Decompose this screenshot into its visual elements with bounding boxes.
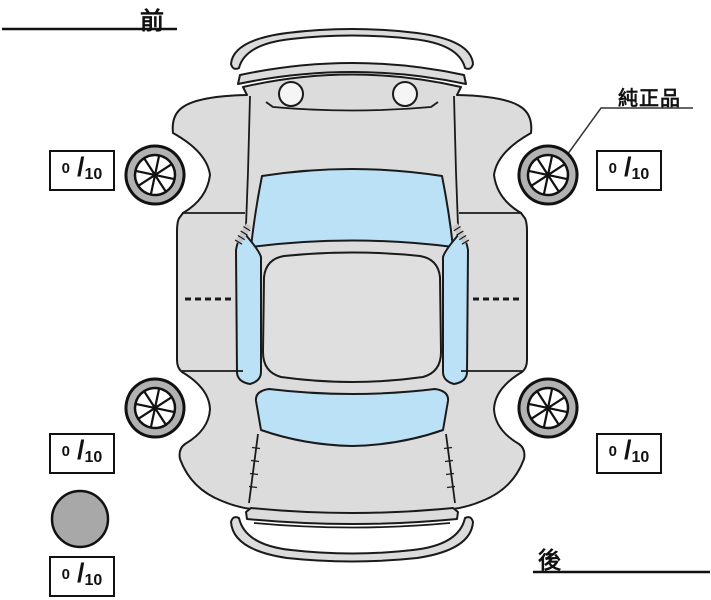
tread-separator: / bbox=[77, 560, 85, 587]
hood-washer-right bbox=[393, 82, 417, 106]
tread-score-rear-right: 0 / 10 bbox=[596, 433, 662, 474]
tread-value: 0 bbox=[62, 566, 70, 583]
tread-score-front-left: 0 / 10 bbox=[49, 150, 115, 191]
wheel-rear-left-icon bbox=[121, 374, 190, 443]
tread-max: 10 bbox=[632, 166, 650, 184]
wheel-front-left-icon bbox=[121, 141, 190, 210]
rear-window-glass bbox=[256, 389, 448, 446]
tread-value: 0 bbox=[62, 160, 70, 177]
front-label: 前 bbox=[140, 1, 164, 36]
side-window-left bbox=[236, 233, 261, 384]
tread-value: 0 bbox=[609, 160, 617, 177]
vehicle-diagram-canvas: 前 後 純正品 0 / 10 0 / 10 0 / 10 0 / 10 0 / … bbox=[0, 0, 711, 600]
tread-separator: / bbox=[624, 437, 632, 464]
tread-separator: / bbox=[77, 154, 85, 181]
roof-panel bbox=[263, 253, 441, 383]
spare-tire-icon bbox=[52, 491, 108, 547]
tread-separator: / bbox=[624, 154, 632, 181]
rear-label: 後 bbox=[538, 541, 561, 575]
tread-max: 10 bbox=[85, 449, 103, 467]
wheel-rear-right-icon bbox=[514, 374, 583, 443]
car-top-view-diagram bbox=[0, 0, 711, 600]
tread-max: 10 bbox=[632, 449, 650, 467]
windshield-glass bbox=[251, 169, 453, 247]
tread-value: 0 bbox=[609, 443, 617, 460]
tread-score-front-right: 0 / 10 bbox=[596, 150, 662, 191]
tread-value: 0 bbox=[62, 443, 70, 460]
tread-score-spare: 0 / 10 bbox=[49, 556, 115, 597]
tread-separator: / bbox=[77, 437, 85, 464]
tread-score-rear-left: 0 / 10 bbox=[49, 433, 115, 474]
tread-max: 10 bbox=[85, 166, 103, 184]
wheel-front-right-icon bbox=[514, 141, 583, 210]
tread-max: 10 bbox=[85, 572, 103, 590]
genuine-part-label: 純正品 bbox=[618, 82, 681, 111]
side-window-right bbox=[443, 233, 468, 384]
hood-washer-left bbox=[279, 82, 303, 106]
